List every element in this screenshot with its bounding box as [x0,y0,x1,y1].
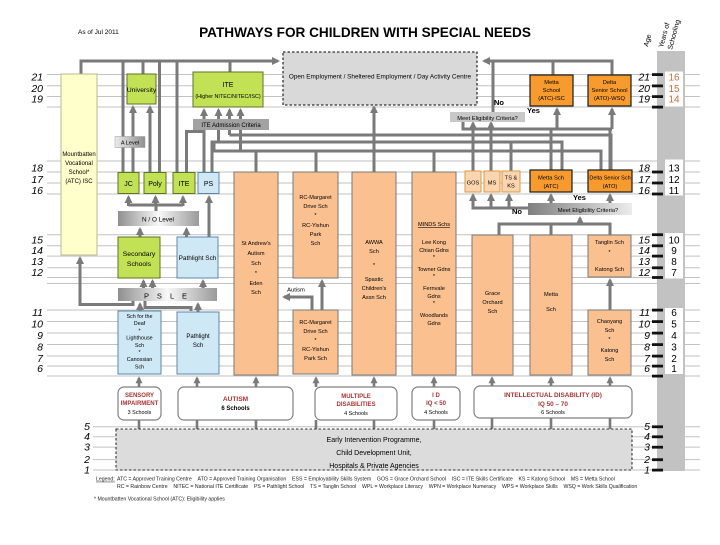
svg-text:18: 18 [638,163,650,175]
svg-text:19: 19 [31,94,43,106]
svg-text:9: 9 [644,330,650,342]
svg-text:4 Schools: 4 Schools [424,410,448,416]
svg-text:Open Employment / Sheltered Em: Open Employment / Sheltered Employment /… [289,74,472,81]
svg-text:16: 16 [638,185,650,197]
svg-text:Pathlight Sch: Pathlight Sch [179,255,217,262]
svg-text:6 Schools: 6 Schools [221,406,250,412]
svg-text:PATHWAYS FOR CHILDREN WITH SPE: PATHWAYS FOR CHILDREN WITH SPECIAL NEEDS [199,25,531,40]
svg-text:8: 8 [644,342,650,354]
svg-text:12: 12 [668,175,680,186]
svg-text:6: 6 [37,363,43,375]
svg-text:6 Schools: 6 Schools [541,410,565,416]
svg-text:7: 7 [671,268,677,279]
svg-text:Katong Sch: Katong Sch [595,267,624,273]
svg-text:12: 12 [31,267,43,279]
svg-text:5: 5 [671,320,677,331]
svg-text:4: 4 [671,331,677,342]
svg-text:3: 3 [671,343,677,354]
svg-text:6: 6 [644,363,650,375]
svg-text:1: 1 [84,465,90,477]
svg-text:PS: PS [204,181,214,188]
svg-text:Yes: Yes [573,193,586,202]
svg-text:GOS: GOS [467,181,480,187]
svg-text:P S L E: P S L E [144,292,190,301]
svg-text:Legend:: Legend: [96,477,115,483]
svg-text:19: 19 [638,94,650,106]
svg-text:15: 15 [668,84,680,95]
svg-text:ITE: ITE [179,181,190,188]
svg-text:9: 9 [37,330,43,342]
svg-text:University: University [127,87,157,94]
svg-text:10: 10 [638,319,650,331]
svg-text:MS: MS [488,181,497,187]
svg-text:10: 10 [31,319,43,331]
svg-text:(Higher NITEC/NITEC/ISC): (Higher NITEC/NITEC/ISC) [195,94,260,100]
svg-text:JC: JC [124,181,133,188]
svg-text:1: 1 [671,364,677,375]
svg-text:Early Intervention Programme,C: Early Intervention Programme,Child Devel… [327,437,422,470]
svg-text:17: 17 [31,174,44,186]
svg-text:3 Schools: 3 Schools [128,410,152,416]
svg-text:13: 13 [668,164,680,175]
svg-text:18: 18 [31,163,43,175]
svg-text:No: No [512,207,522,216]
svg-text:4 Schools: 4 Schools [344,411,368,417]
svg-text:14: 14 [668,95,680,106]
svg-text:A Level: A Level [121,141,139,147]
svg-text:Yes: Yes [527,106,540,115]
svg-text:17: 17 [638,174,651,186]
svg-text:8: 8 [37,342,43,354]
svg-text:As of Jul 2011: As of Jul 2011 [78,29,119,36]
svg-text:ATC = Approved Training Centre: ATC = Approved Training Centre ATO = App… [117,477,615,483]
svg-text:AUTISM: AUTISM [223,396,249,403]
svg-text:16: 16 [31,185,43,197]
svg-text:8: 8 [671,257,677,268]
svg-text:RC = Rainbow Centre NITEC =: RC = Rainbow Centre NITEC = National ITE… [117,484,637,490]
svg-text:11: 11 [669,186,680,197]
svg-text:16: 16 [668,73,680,84]
svg-text:9: 9 [671,246,677,257]
svg-text:6: 6 [671,308,677,319]
svg-text:11: 11 [639,307,650,319]
svg-text:ITE: ITE [223,82,234,89]
svg-text:1: 1 [644,465,650,477]
svg-text:Autism: Autism [287,288,305,294]
svg-text:N / O Level: N / O Level [142,217,174,224]
svg-text:11: 11 [32,307,43,319]
svg-text:21: 21 [30,72,43,84]
svg-text:10: 10 [668,235,680,246]
svg-text:ITE Admission Criteria: ITE Admission Criteria [201,123,261,129]
svg-text:Meet Eligibility Criteria?: Meet Eligibility Criteria? [457,116,518,122]
svg-text:3: 3 [84,442,90,454]
svg-text:* Mountbatten Vocational Schoo: * Mountbatten Vocational School (ATC): E… [94,497,225,503]
svg-text:No: No [494,98,504,107]
svg-text:MINDS Schs: MINDS Schs [418,222,450,228]
svg-text:Meet Eligibility Criteria?: Meet Eligibility Criteria? [558,208,619,214]
svg-text:3: 3 [644,442,650,454]
svg-text:12: 12 [638,267,650,279]
svg-text:Poly: Poly [148,181,162,188]
svg-text:21: 21 [637,72,650,84]
